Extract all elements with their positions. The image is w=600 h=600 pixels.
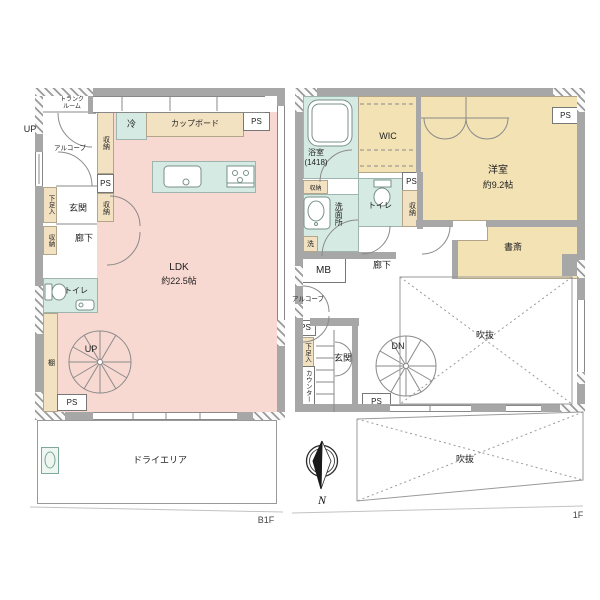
wic-label: WIC <box>370 131 406 141</box>
site-line <box>30 507 283 512</box>
closet-scallop <box>421 97 509 139</box>
western-room-size-label: 約9.2帖 <box>467 180 529 190</box>
compass-icon <box>307 441 338 489</box>
up-outside-label: UP <box>20 124 40 134</box>
drain-icon <box>45 452 55 468</box>
door-arc <box>422 226 450 254</box>
door-arc <box>58 152 92 186</box>
up-stairs-label: UP <box>78 344 104 354</box>
north-label: N <box>317 493 327 507</box>
window-mullion <box>133 413 200 419</box>
step-line <box>316 330 334 412</box>
toilet-label: トイレ <box>358 201 402 210</box>
ldk-size-label: 約22.5帖 <box>145 276 213 286</box>
door-arc <box>110 196 140 226</box>
western-room-label: 洋室 <box>467 165 529 177</box>
entrance-label: 玄関 <box>60 203 96 213</box>
door-arc <box>107 232 140 265</box>
void-cross <box>400 277 572 404</box>
dn-stairs-label: DN <box>385 341 411 351</box>
washbasin-icon <box>76 300 94 310</box>
bath-label: 浴室 <box>294 148 338 157</box>
ldk-label: LDK <box>145 262 213 274</box>
floor-plan-image: PS 収納 PS 収納 下足入 収納 棚 PS <box>0 0 600 600</box>
f1-floor-label: 1F <box>562 510 594 520</box>
hallway-label: 廊下 <box>366 260 398 270</box>
sink-icon <box>164 166 201 187</box>
stove-icon <box>227 166 254 187</box>
void-label: 吹抜 <box>459 330 511 340</box>
bath-size-label: (1418) <box>294 158 338 167</box>
trunk-room-label: トランクルーム <box>58 97 86 111</box>
bathtub-icon <box>308 100 352 146</box>
alcove-label: アルコーブ <box>287 296 329 303</box>
toilet-label: トイレ <box>56 286 96 295</box>
washroom-label: 洗面所 <box>334 197 343 231</box>
site-line <box>292 506 583 513</box>
washbasin-icon <box>304 197 330 229</box>
door-arc <box>362 226 390 254</box>
study-label: 書斎 <box>478 242 548 252</box>
dry-area-label: ドライエリア <box>118 455 202 465</box>
alcove-label: アルコーブ <box>48 145 92 152</box>
cupboard-label: カップボード <box>146 119 244 128</box>
door-arc <box>303 316 329 342</box>
void-label: 吹抜 <box>439 454 491 464</box>
door-arc <box>58 113 92 147</box>
window-mullion <box>122 97 217 111</box>
entrance-label: 玄関 <box>327 353 359 363</box>
refrigerator-label: 冷 <box>116 119 147 129</box>
hallway-label: 廊下 <box>66 233 102 243</box>
b1f-floor-label: B1F <box>248 515 284 525</box>
spiral-stair-up-icon <box>69 331 131 393</box>
